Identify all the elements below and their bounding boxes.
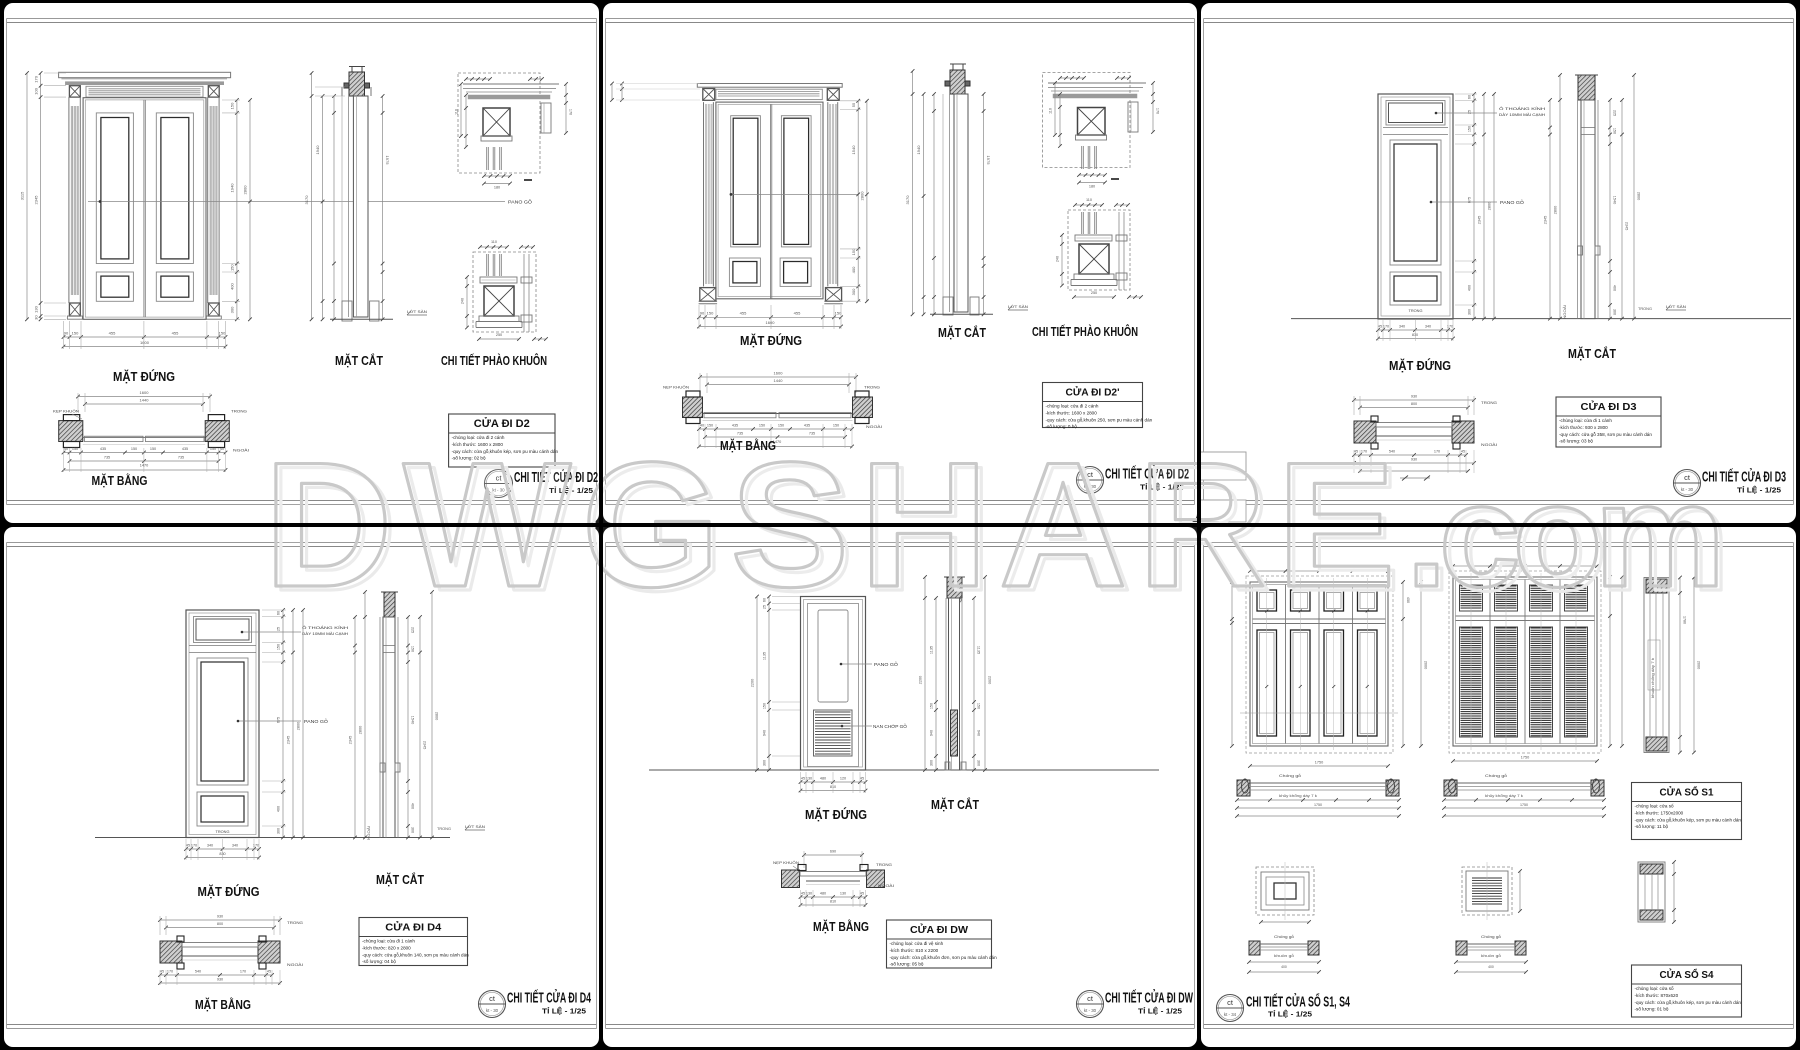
svg-text:-số lượng: 02 bộ: -số lượng: 02 bộ xyxy=(452,456,486,461)
svg-text:2800: 2800 xyxy=(1554,206,1558,214)
svg-text:110: 110 xyxy=(1049,108,1053,114)
svg-text:170: 170 xyxy=(569,109,573,115)
svg-text:940: 940 xyxy=(930,730,934,736)
svg-text:170: 170 xyxy=(34,75,39,82)
svg-text:2345: 2345 xyxy=(422,741,426,749)
svg-text:690: 690 xyxy=(830,850,836,854)
svg-text:MẶT BẰNG: MẶT BẰNG xyxy=(720,438,776,453)
svg-text:170: 170 xyxy=(167,970,173,974)
svg-text:-quy cách: cửa gỗ,khuôn kép, s: -quy cách: cửa gỗ,khuôn kép, sơn pu màu … xyxy=(452,448,559,454)
svg-text:NGOÀI: NGOÀI xyxy=(233,449,249,453)
svg-text:150: 150 xyxy=(230,102,235,109)
svg-text:kt - 30: kt - 30 xyxy=(486,1008,499,1013)
svg-text:150: 150 xyxy=(976,703,980,709)
svg-text:1135: 1135 xyxy=(976,646,980,654)
svg-text:400: 400 xyxy=(1468,285,1472,291)
svg-text:khuôn gỗ: khuôn gỗ xyxy=(1481,953,1501,958)
svg-text:150: 150 xyxy=(833,424,839,428)
svg-text:130: 130 xyxy=(806,892,812,896)
svg-text:30: 30 xyxy=(34,315,39,320)
svg-text:NẸP KHUÔN: NẸP KHUÔN xyxy=(773,860,799,865)
svg-text:NAN CHỚP GỖ: NAN CHỚP GỖ xyxy=(873,724,908,729)
svg-text:150: 150 xyxy=(707,311,714,316)
svg-text:400: 400 xyxy=(1488,965,1494,969)
svg-text:300: 300 xyxy=(1612,309,1616,315)
svg-text:2345: 2345 xyxy=(1624,222,1628,230)
svg-text:1540: 1540 xyxy=(410,716,414,724)
svg-text:TRONG: TRONG xyxy=(1481,401,1497,405)
svg-text:455: 455 xyxy=(740,311,747,316)
svg-text:-số lượng: 04 bộ: -số lượng: 04 bộ xyxy=(362,959,396,964)
svg-text:735: 735 xyxy=(809,432,815,436)
svg-text:2800: 2800 xyxy=(1636,192,1640,200)
svg-text:300: 300 xyxy=(930,760,934,766)
svg-text:240: 240 xyxy=(461,298,465,304)
svg-text:MẶT ĐỨNG: MẶT ĐỨNG xyxy=(805,807,867,822)
svg-text:45: 45 xyxy=(801,892,805,896)
svg-text:170: 170 xyxy=(1361,450,1367,454)
svg-text:1940: 1940 xyxy=(230,183,235,193)
svg-text:1540: 1540 xyxy=(851,145,856,155)
svg-text:180: 180 xyxy=(494,186,500,190)
svg-text:435: 435 xyxy=(100,447,106,451)
svg-text:ct: ct xyxy=(496,474,503,483)
svg-text:930: 930 xyxy=(217,978,223,982)
svg-text:90: 90 xyxy=(64,330,69,335)
svg-text:240: 240 xyxy=(1056,256,1060,262)
svg-text:225: 225 xyxy=(410,627,414,633)
svg-text:3170: 3170 xyxy=(304,195,309,205)
svg-text:800: 800 xyxy=(217,922,223,926)
svg-text:300: 300 xyxy=(277,828,281,834)
svg-text:540: 540 xyxy=(1389,450,1395,454)
svg-text:25: 25 xyxy=(1468,110,1472,114)
svg-text:CỬA SỔ S1: CỬA SỔ S1 xyxy=(1660,786,1714,799)
svg-text:TỈ LỆ - 1/25: TỈ LỆ - 1/25 xyxy=(1138,1007,1182,1016)
svg-text:40: 40 xyxy=(700,424,704,428)
svg-text:CHI TIẾT CỬA ĐI D3: CHI TIẾT CỬA ĐI D3 xyxy=(1702,468,1786,486)
svg-text:MẶT ĐỨNG: MẶT ĐỨNG xyxy=(740,333,802,348)
svg-text:480: 480 xyxy=(820,777,826,781)
svg-text:2200: 2200 xyxy=(751,679,755,687)
svg-text:225: 225 xyxy=(1612,110,1616,116)
svg-text:-chủng loại: cửa đi 1 cánh: -chủng loại: cửa đi 1 cánh xyxy=(1559,417,1612,423)
svg-text:TRONG: TRONG xyxy=(1638,307,1652,311)
svg-text:-kích thước: 1600 x 2800: -kích thước: 1600 x 2800 xyxy=(1046,411,1098,416)
svg-text:khủy khổng dày 7 k: khủy khổng dày 7 k xyxy=(1485,794,1524,798)
svg-text:MẶT CẮT: MẶT CẮT xyxy=(938,325,986,340)
svg-text:-quy cách: cửa gỗ,khuôn 140, s: -quy cách: cửa gỗ,khuôn 140, sơn pu màu … xyxy=(362,951,469,957)
svg-text:45: 45 xyxy=(186,844,190,848)
svg-text:NGOÀI: NGOÀI xyxy=(1481,443,1497,447)
svg-text:150: 150 xyxy=(1612,128,1616,134)
svg-text:435: 435 xyxy=(182,447,188,451)
svg-text:1135: 1135 xyxy=(930,646,934,654)
svg-text:340: 340 xyxy=(1425,325,1431,329)
svg-text:455: 455 xyxy=(109,330,116,335)
svg-text:PANO GỖ: PANO GỖ xyxy=(1500,200,1525,205)
svg-text:110: 110 xyxy=(455,109,459,115)
svg-text:940: 940 xyxy=(976,730,980,736)
svg-text:PANO GỖ: PANO GỖ xyxy=(304,719,329,724)
svg-text:45: 45 xyxy=(1354,450,1358,454)
svg-text:-kích thước: 1750x2000: -kích thước: 1750x2000 xyxy=(1635,811,1684,816)
svg-text:CHI TIẾT CỬA ĐI DW: CHI TIẾT CỬA ĐI DW xyxy=(1105,989,1193,1007)
svg-text:ct: ct xyxy=(1684,473,1691,482)
svg-text:1940: 1940 xyxy=(916,145,921,155)
svg-text:110: 110 xyxy=(1086,198,1092,202)
svg-text:CỬA ĐI D2': CỬA ĐI D2' xyxy=(1066,386,1120,399)
svg-text:400: 400 xyxy=(277,806,281,812)
svg-text:450: 450 xyxy=(1406,597,1410,603)
svg-text:25: 25 xyxy=(763,605,767,609)
svg-text:NGOÀI: NGOÀI xyxy=(1563,305,1567,319)
svg-text:TRONG: TRONG xyxy=(864,386,880,390)
svg-text:2345: 2345 xyxy=(34,195,39,205)
svg-text:2345: 2345 xyxy=(1478,216,1482,224)
svg-text:2200: 2200 xyxy=(919,676,923,684)
svg-text:2345: 2345 xyxy=(349,736,353,744)
svg-text:MẶT CẮT: MẶT CẮT xyxy=(1568,346,1616,361)
svg-text:150: 150 xyxy=(410,646,414,652)
svg-text:540: 540 xyxy=(195,970,201,974)
svg-text:45: 45 xyxy=(267,970,271,974)
svg-text:90: 90 xyxy=(700,311,705,316)
svg-text:NGOÀI: NGOÀI xyxy=(367,826,371,840)
svg-text:PANO GỖ: PANO GỖ xyxy=(874,662,899,667)
svg-text:CỬA ĐI DW: CỬA ĐI DW xyxy=(910,923,968,936)
svg-text:170: 170 xyxy=(1156,108,1160,114)
svg-text:-chủng loại: cửa sổ: -chủng loại: cửa sổ xyxy=(1635,985,1675,991)
svg-text:-kích thước: 870x620: -kích thước: 870x620 xyxy=(1635,993,1679,998)
svg-text:1975: 1975 xyxy=(385,156,390,166)
svg-text:1440: 1440 xyxy=(140,398,150,403)
svg-text:130: 130 xyxy=(806,777,812,781)
svg-text:1600: 1600 xyxy=(766,320,776,325)
svg-text:340: 340 xyxy=(1399,325,1405,329)
svg-text:MẶT BẰNG: MẶT BẰNG xyxy=(92,473,148,488)
svg-text:-chủng loại: cửa sổ: -chủng loại: cửa sổ xyxy=(1635,803,1675,809)
svg-text:40: 40 xyxy=(220,447,224,451)
svg-text:250: 250 xyxy=(1091,291,1097,295)
svg-text:MẶT ĐỨNG: MẶT ĐỨNG xyxy=(1389,358,1451,373)
svg-text:1780: 1780 xyxy=(1682,616,1686,624)
svg-text:150: 150 xyxy=(763,703,767,709)
svg-text:55: 55 xyxy=(851,102,856,107)
svg-text:45: 45 xyxy=(160,970,164,974)
svg-text:TỈ LỆ - 1/25: TỈ LỆ - 1/25 xyxy=(1737,486,1781,495)
svg-text:1750: 1750 xyxy=(1314,803,1322,807)
svg-text:Chống gỗ: Chống gỗ xyxy=(1279,773,1301,778)
svg-text:NẸP KHUÔN: NẸP KHUÔN xyxy=(663,385,689,390)
svg-text:TRONG: TRONG xyxy=(216,830,230,834)
svg-text:-số lượng: 01 bộ: -số lượng: 01 bộ xyxy=(1635,1007,1669,1012)
svg-text:455: 455 xyxy=(172,330,179,335)
svg-text:2800: 2800 xyxy=(860,191,865,201)
svg-text:2800: 2800 xyxy=(359,726,363,734)
svg-text:150: 150 xyxy=(230,264,235,271)
svg-text:Ô THOÁNG KÍNH: Ô THOÁNG KÍNH xyxy=(1499,106,1545,111)
svg-text:MẶT CẮT: MẶT CẮT xyxy=(376,872,424,887)
svg-text:khuôn chống dày 7 k: khuôn chống dày 7 k xyxy=(1651,658,1655,698)
svg-text:CHI TIẾT PHÀO KHUÔN: CHI TIẾT PHÀO KHUÔN xyxy=(441,353,547,368)
svg-text:kt - 30: kt - 30 xyxy=(492,488,505,493)
svg-text:170: 170 xyxy=(191,844,197,848)
svg-text:1440: 1440 xyxy=(774,378,784,383)
svg-text:kt - 30: kt - 30 xyxy=(1681,487,1694,492)
svg-text:2200: 2200 xyxy=(987,676,991,684)
svg-text:2345: 2345 xyxy=(287,736,291,744)
svg-text:1750: 1750 xyxy=(1520,803,1528,807)
svg-text:45: 45 xyxy=(860,777,864,781)
svg-text:150: 150 xyxy=(219,330,226,335)
svg-text:CỬA ĐI D3: CỬA ĐI D3 xyxy=(1581,400,1637,413)
svg-text:45: 45 xyxy=(1461,450,1465,454)
svg-text:TRONG: TRONG xyxy=(437,827,451,831)
svg-text:735: 735 xyxy=(104,456,110,460)
svg-text:-kích thước: 820 x 2800: -kích thước: 820 x 2800 xyxy=(362,946,411,951)
svg-text:40: 40 xyxy=(64,447,68,451)
svg-text:DÀY 10MM MÀI CẠNH: DÀY 10MM MÀI CẠNH xyxy=(1499,113,1545,117)
svg-text:MẶT ĐỨNG: MẶT ĐỨNG xyxy=(198,884,260,899)
svg-text:CHI TIẾT CỬA SỔ S1, S4: CHI TIẾT CỬA SỔ S1, S4 xyxy=(1246,993,1350,1011)
svg-text:TRONG: TRONG xyxy=(1409,309,1423,313)
svg-text:Chống gỗ: Chống gỗ xyxy=(1485,773,1507,778)
svg-text:25: 25 xyxy=(277,627,281,631)
svg-text:340: 340 xyxy=(232,844,238,848)
svg-text:300: 300 xyxy=(410,827,414,833)
svg-text:TRONG: TRONG xyxy=(876,863,892,867)
svg-text:250: 250 xyxy=(496,333,502,337)
svg-text:CỬA ĐI D2: CỬA ĐI D2 xyxy=(474,417,530,430)
svg-text:150: 150 xyxy=(131,447,137,451)
svg-text:TRONG: TRONG xyxy=(287,921,303,925)
svg-text:TRONG: TRONG xyxy=(231,410,247,414)
svg-text:2800: 2800 xyxy=(243,185,248,195)
svg-text:150: 150 xyxy=(210,447,216,451)
svg-text:60: 60 xyxy=(277,611,281,615)
svg-text:810: 810 xyxy=(830,900,836,904)
svg-text:1600: 1600 xyxy=(774,371,784,376)
svg-text:100: 100 xyxy=(34,87,39,94)
svg-text:800: 800 xyxy=(1411,402,1417,406)
svg-text:735: 735 xyxy=(737,432,743,436)
svg-text:ct: ct xyxy=(489,994,496,1003)
svg-text:kt - 30: kt - 30 xyxy=(1084,1008,1097,1013)
svg-text:400: 400 xyxy=(1612,285,1616,291)
svg-text:-quy cách: cửa gỗ,khuôn kép, s: -quy cách: cửa gỗ,khuôn kép, sơn pu màu … xyxy=(1635,999,1742,1005)
svg-text:KẸP KHUÔN: KẸP KHUÔN xyxy=(53,409,79,414)
svg-text:1940: 1940 xyxy=(315,145,320,155)
svg-text:MẶT ĐỨNG: MẶT ĐỨNG xyxy=(113,369,175,384)
svg-text:1975: 1975 xyxy=(986,156,991,166)
svg-text:120: 120 xyxy=(840,777,846,781)
svg-text:45: 45 xyxy=(1378,325,1382,329)
svg-text:CHI TIẾT CỬA ĐI D2: CHI TIẾT CỬA ĐI D2 xyxy=(514,468,598,486)
svg-text:MẶT BẰNG: MẶT BẰNG xyxy=(195,997,251,1012)
svg-text:NGOÀI: NGOÀI xyxy=(878,884,894,888)
svg-text:340: 340 xyxy=(207,844,213,848)
svg-text:2800: 2800 xyxy=(1488,202,1492,210)
svg-text:150: 150 xyxy=(277,644,281,650)
svg-text:DÀY 10MM MÀI CẠNH: DÀY 10MM MÀI CẠNH xyxy=(302,632,348,636)
svg-text:-số lượng: 11 bộ: -số lượng: 11 bộ xyxy=(1635,824,1669,829)
svg-text:-chủng loại: cửa đi 1 cánh: -chủng loại: cửa đi 1 cánh xyxy=(362,938,415,944)
svg-text:kt - 30: kt - 30 xyxy=(1084,484,1097,489)
svg-text:180: 180 xyxy=(1089,185,1095,189)
svg-text:735: 735 xyxy=(178,456,184,460)
svg-text:-chủng loại: cửa đi vệ sinh: -chủng loại: cửa đi vệ sinh xyxy=(890,940,944,946)
svg-text:170: 170 xyxy=(240,970,246,974)
svg-text:-quy cách: cửa gỗ,khuôn đơn, s: -quy cách: cửa gỗ,khuôn đơn, sơn pu màu … xyxy=(890,954,998,960)
svg-text:830: 830 xyxy=(1412,333,1418,337)
svg-text:150: 150 xyxy=(72,447,78,451)
svg-text:-kích thước: 810 x 2200: -kích thước: 810 x 2200 xyxy=(890,948,939,953)
svg-text:1750: 1750 xyxy=(1315,761,1323,765)
svg-text:MẶT CẮT: MẶT CẮT xyxy=(931,797,979,812)
svg-text:150: 150 xyxy=(930,703,934,709)
svg-text:150: 150 xyxy=(778,424,784,428)
svg-text:170: 170 xyxy=(1434,450,1440,454)
svg-text:675: 675 xyxy=(277,717,281,723)
svg-text:930: 930 xyxy=(217,915,223,919)
svg-text:1135: 1135 xyxy=(763,652,767,660)
svg-text:150: 150 xyxy=(150,447,156,451)
svg-text:3170: 3170 xyxy=(905,195,910,205)
svg-text:TỈ LỆ - 1/25: TỈ LỆ - 1/25 xyxy=(1268,1010,1312,1019)
svg-text:-số lượng: 0 bộ: -số lượng: 0 bộ xyxy=(1046,424,1078,429)
svg-text:130: 130 xyxy=(34,305,39,312)
svg-text:2800: 2800 xyxy=(434,712,438,720)
svg-text:45: 45 xyxy=(801,777,805,781)
svg-text:PANO GỖ: PANO GỖ xyxy=(508,199,533,204)
svg-text:CHI TIẾT CỬA ĐI D4: CHI TIẾT CỬA ĐI D4 xyxy=(507,989,591,1007)
svg-text:110: 110 xyxy=(491,240,497,244)
svg-text:940: 940 xyxy=(763,730,767,736)
svg-text:ct: ct xyxy=(1227,998,1234,1007)
svg-text:-số lượng: 03 bộ: -số lượng: 03 bộ xyxy=(1559,439,1593,444)
svg-text:1750: 1750 xyxy=(1521,756,1529,760)
svg-text:TỈ LỆ - 1/25: TỈ LỆ - 1/25 xyxy=(1140,483,1184,492)
svg-text:2345: 2345 xyxy=(1544,216,1548,224)
svg-text:TỈ LỆ - 1/25: TỈ LỆ - 1/25 xyxy=(549,486,593,495)
svg-text:1600: 1600 xyxy=(140,340,150,345)
svg-text:ct: ct xyxy=(1087,470,1094,479)
svg-text:60: 60 xyxy=(1468,95,1472,99)
svg-text:400: 400 xyxy=(230,282,235,289)
svg-text:1540: 1540 xyxy=(1612,196,1616,204)
svg-text:170: 170 xyxy=(1383,325,1389,329)
svg-text:300: 300 xyxy=(230,306,235,313)
svg-text:400: 400 xyxy=(410,803,414,809)
svg-text:-quy cách: cửa gỗ,khuôn 250, s: -quy cách: cửa gỗ,khuôn 250, sơn pu màu … xyxy=(1046,416,1153,422)
svg-text:3115: 3115 xyxy=(19,191,24,200)
svg-text:2000: 2000 xyxy=(1424,661,1428,669)
svg-text:300: 300 xyxy=(851,288,856,295)
svg-text:480: 480 xyxy=(820,892,826,896)
svg-text:455: 455 xyxy=(794,311,801,316)
svg-text:CỬA ĐI D4: CỬA ĐI D4 xyxy=(385,921,441,934)
svg-text:150: 150 xyxy=(1468,126,1472,132)
svg-text:-kích thước: 1600 x 2800: -kích thước: 1600 x 2800 xyxy=(452,442,504,447)
svg-text:-kích thước: 930 x 2800: -kích thước: 930 x 2800 xyxy=(1559,425,1608,430)
svg-text:1600: 1600 xyxy=(140,390,150,395)
svg-text:Chống gỗ: Chống gỗ xyxy=(1481,934,1501,939)
svg-text:MẶT CẮT: MẶT CẮT xyxy=(335,353,383,368)
svg-text:TỈ LỆ - 1/25: TỈ LỆ - 1/25 xyxy=(542,1007,586,1016)
svg-text:2800: 2800 xyxy=(297,722,301,730)
svg-text:Chống gỗ: Chống gỗ xyxy=(1274,934,1294,939)
svg-text:-số lượng: 05 bộ: -số lượng: 05 bộ xyxy=(890,962,924,967)
svg-text:kt - 34: kt - 34 xyxy=(1224,1012,1237,1017)
svg-text:Ô THOÁNG KÍNH: Ô THOÁNG KÍNH xyxy=(302,625,348,630)
svg-text:60: 60 xyxy=(763,598,767,602)
svg-text:435: 435 xyxy=(804,424,810,428)
svg-text:400: 400 xyxy=(851,266,856,273)
svg-text:930: 930 xyxy=(1411,458,1417,462)
svg-text:-chủng loại: cửa đi 2 cánh: -chủng loại: cửa đi 2 cánh xyxy=(452,434,505,440)
svg-text:300: 300 xyxy=(976,760,980,766)
svg-text:CỬA SỔ S4: CỬA SỔ S4 xyxy=(1660,968,1714,981)
svg-text:435: 435 xyxy=(732,424,738,428)
svg-text:2000: 2000 xyxy=(1696,661,1700,669)
svg-text:45: 45 xyxy=(860,892,864,896)
svg-text:675: 675 xyxy=(1468,197,1472,203)
svg-text:930: 930 xyxy=(1411,395,1417,399)
svg-text:150: 150 xyxy=(759,424,765,428)
svg-text:khủy khổng dày 7 k: khủy khổng dày 7 k xyxy=(1279,794,1318,798)
svg-text:NGOÀI: NGOÀI xyxy=(287,963,303,967)
svg-text:150: 150 xyxy=(72,330,79,335)
svg-text:ct: ct xyxy=(1087,994,1094,1003)
svg-text:MẶT BẰNG: MẶT BẰNG xyxy=(813,919,869,934)
svg-text:-chủng loại: cửa đi 2 cánh: -chủng loại: cửa đi 2 cánh xyxy=(1046,403,1099,409)
svg-text:130: 130 xyxy=(840,892,846,896)
svg-text:NGOÀI: NGOÀI xyxy=(866,425,882,429)
svg-text:400: 400 xyxy=(1281,965,1287,969)
svg-text:300: 300 xyxy=(1468,309,1472,315)
svg-text:150: 150 xyxy=(707,424,713,428)
svg-text:-quy cách: cửa gỗ 358, sơn pu: -quy cách: cửa gỗ 358, sơn pu màu cánh d… xyxy=(1559,431,1652,437)
svg-text:khuôn gỗ: khuôn gỗ xyxy=(1274,953,1294,958)
svg-text:-quy cách: cửa gỗ,khuôn kép, s: -quy cách: cửa gỗ,khuôn kép, sơn pu màu … xyxy=(1635,816,1742,822)
svg-text:CHI TIẾT CỬA ĐI D2: CHI TIẾT CỬA ĐI D2 xyxy=(1105,465,1189,483)
svg-text:CHI TIẾT PHÀO KHUÔN: CHI TIẾT PHÀO KHUÔN xyxy=(1032,324,1138,339)
svg-text:300: 300 xyxy=(763,760,767,766)
